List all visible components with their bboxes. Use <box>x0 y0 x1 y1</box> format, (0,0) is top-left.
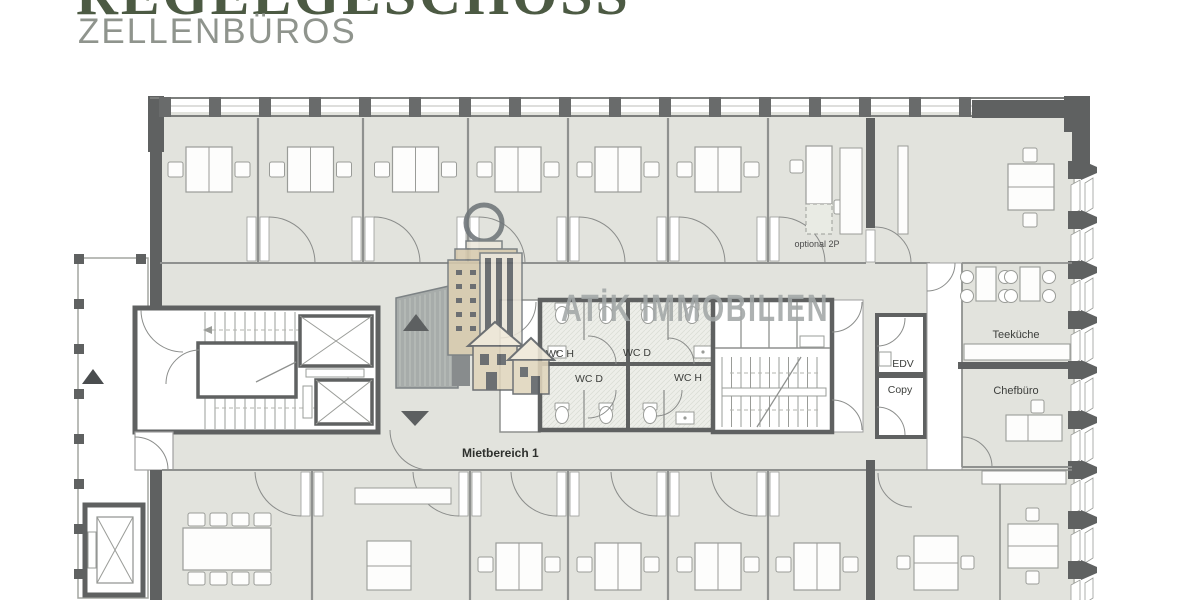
door-leaf <box>670 472 679 516</box>
door-leaf <box>770 217 779 261</box>
chair <box>1031 400 1044 413</box>
balcony-post <box>74 254 84 264</box>
logo-house-window <box>497 354 506 365</box>
logo-window <box>470 298 476 303</box>
door-leaf <box>314 472 323 516</box>
window-mullion <box>609 97 621 117</box>
logo-window <box>470 284 476 289</box>
chair <box>210 572 227 585</box>
sideboard <box>840 148 862 234</box>
chair <box>1026 508 1039 521</box>
window-mullion <box>409 97 421 117</box>
balcony-post <box>74 479 84 489</box>
sideboard <box>898 146 908 234</box>
chair <box>1023 213 1037 227</box>
room-label-wc-d: WC D <box>575 373 603 385</box>
door-leaf <box>459 472 468 516</box>
room-label-chefbuero: Chefbüro <box>993 385 1038 397</box>
facade-anchor <box>1081 460 1097 480</box>
logo-window <box>456 326 462 331</box>
chair <box>1023 148 1037 162</box>
logo-window <box>456 298 462 303</box>
window-pane <box>1071 530 1080 565</box>
chair <box>254 572 271 585</box>
chair <box>544 162 559 177</box>
dividing-wall <box>958 362 1072 369</box>
window-mullion <box>509 97 521 117</box>
counterweight <box>306 369 364 377</box>
round-chair <box>961 271 974 284</box>
shelf <box>879 352 891 366</box>
chair <box>790 160 803 173</box>
round-chair <box>961 290 974 303</box>
chair <box>677 162 692 177</box>
elevator-door <box>88 532 96 568</box>
stair-rail <box>722 388 826 396</box>
window-pane <box>1071 430 1080 465</box>
window-mullion <box>759 97 771 117</box>
logo-window <box>470 326 476 331</box>
desk <box>1006 415 1062 441</box>
chair <box>168 162 183 177</box>
facade-anchor <box>1068 411 1081 429</box>
facade-anchor <box>1081 410 1097 430</box>
chair <box>188 513 205 526</box>
chair <box>577 557 592 572</box>
room-divider <box>875 372 927 378</box>
sideboard <box>982 471 1066 484</box>
window-pane <box>1085 578 1093 600</box>
sink-drain <box>701 350 704 353</box>
chair <box>677 557 692 572</box>
window-mullion <box>709 97 721 117</box>
balcony-post <box>74 299 84 309</box>
chair <box>337 162 352 177</box>
conference-table <box>183 528 271 570</box>
window-pane <box>1085 528 1093 563</box>
logo-house-window <box>520 367 528 377</box>
toilet <box>556 407 569 424</box>
room-label-optional: optional 2P <box>794 239 839 249</box>
door-leaf <box>557 217 566 261</box>
window-mullion <box>459 97 471 117</box>
door-leaf <box>757 217 766 261</box>
window-pane <box>1071 330 1080 365</box>
edv-copy-rooms: EDV Copy <box>875 315 927 437</box>
round-chair <box>1005 290 1018 303</box>
door-leaf <box>472 472 481 516</box>
chair <box>232 513 249 526</box>
window-pane <box>1085 428 1093 463</box>
chair <box>270 162 285 177</box>
table <box>1020 267 1040 301</box>
west-wall <box>150 470 162 600</box>
chair <box>897 556 910 569</box>
chair <box>644 557 659 572</box>
balcony-post <box>74 524 84 534</box>
door-leaf <box>365 217 374 261</box>
room-label-copy: Copy <box>888 384 913 396</box>
west-wall <box>150 140 162 310</box>
chair <box>545 557 560 572</box>
chair <box>478 557 493 572</box>
chair <box>254 513 271 526</box>
door-leaf <box>557 472 566 516</box>
chair <box>1026 571 1039 584</box>
mat <box>800 336 824 347</box>
thick-wall <box>866 118 875 228</box>
door-leaf <box>247 217 256 261</box>
window-mullion <box>859 97 871 117</box>
window-pane <box>1071 280 1080 315</box>
logo-window <box>456 284 462 289</box>
logo-window <box>456 270 462 275</box>
chair <box>644 162 659 177</box>
logo-neck <box>466 241 502 249</box>
round-chair <box>1005 271 1018 284</box>
window-pane <box>1071 380 1080 415</box>
window-pane <box>1071 180 1080 215</box>
facade-anchor <box>1068 561 1081 579</box>
door-leaf <box>670 217 679 261</box>
logo-house-door <box>531 376 540 394</box>
logo-window <box>470 270 476 275</box>
facade-anchor <box>1081 360 1097 380</box>
chair <box>744 162 759 177</box>
balcony-post <box>74 389 84 399</box>
facade-anchor <box>1081 510 1097 530</box>
door-leaf <box>657 472 666 516</box>
logo-house-door <box>486 372 497 390</box>
round-chair <box>1043 271 1056 284</box>
watermark-brand-text: ATİK IMMOBILIEN <box>561 288 829 330</box>
toilet <box>644 407 657 424</box>
door-leaf <box>657 217 666 261</box>
facade-anchor <box>1068 511 1081 529</box>
window-mullion <box>559 97 571 117</box>
balcony-post <box>74 344 84 354</box>
door-leaf <box>260 217 269 261</box>
facade-anchor <box>1081 210 1097 230</box>
door-leaf <box>301 472 310 516</box>
window-mullion <box>959 97 971 117</box>
logo-window <box>456 312 462 317</box>
door-leaf <box>866 230 875 262</box>
room-label-wc-d: WC D <box>623 347 651 359</box>
chair <box>188 572 205 585</box>
window-mullion <box>809 97 821 117</box>
facade-anchor <box>1068 161 1081 179</box>
chair <box>235 162 250 177</box>
facade-anchor <box>1068 311 1081 329</box>
facade-anchor <box>1081 310 1097 330</box>
balcony-post <box>74 569 84 579</box>
logo-house-window <box>480 354 489 365</box>
window-pane <box>1085 328 1093 363</box>
chair <box>442 162 457 177</box>
door-leaf <box>570 217 579 261</box>
table <box>976 267 996 301</box>
sideboard <box>355 488 451 504</box>
window-pane <box>1085 178 1093 213</box>
thick-wall <box>866 460 875 600</box>
round-chair <box>1043 290 1056 303</box>
kitchen-counter <box>964 344 1070 360</box>
room-label-teekueche: Teeküche <box>992 329 1039 341</box>
facade-anchor <box>1068 211 1081 229</box>
window-mullion <box>309 97 321 117</box>
desk <box>806 146 832 204</box>
core-corridor <box>832 300 863 432</box>
room-label-edv: EDV <box>892 358 914 370</box>
window-pane <box>1071 230 1080 265</box>
window-mullion <box>909 97 921 117</box>
window-pane <box>1085 478 1093 513</box>
chair <box>843 557 858 572</box>
door-leaf <box>570 472 579 516</box>
chair <box>375 162 390 177</box>
window-pane <box>1085 278 1093 313</box>
chair <box>577 162 592 177</box>
chair <box>477 162 492 177</box>
window-pane <box>1085 378 1093 413</box>
window-mullion <box>159 97 171 117</box>
chair <box>210 513 227 526</box>
room-label-wc-h: WC H <box>674 372 702 384</box>
window-mullion <box>659 97 671 117</box>
balcony-post <box>136 254 146 264</box>
facade-anchor <box>1081 260 1097 280</box>
logo-window <box>470 312 476 317</box>
chair <box>232 572 249 585</box>
chair <box>776 557 791 572</box>
sink-drain <box>683 416 686 419</box>
area-label-mietbereich: Mietbereich 1 <box>462 446 539 460</box>
window-mullion <box>359 97 371 117</box>
balcony-post <box>74 434 84 444</box>
window-mullion <box>259 97 271 117</box>
door-leaf <box>352 217 361 261</box>
door-leaf <box>770 472 779 516</box>
chair <box>744 557 759 572</box>
corridor-strip <box>927 263 962 470</box>
floor-plan: WC H WC D WC D WC H EDV Copy <box>0 0 1200 600</box>
window-pane <box>1071 480 1080 515</box>
window-pane <box>1085 228 1093 263</box>
chair <box>961 556 974 569</box>
facade-anchor <box>1081 560 1097 580</box>
door-leaf <box>757 472 766 516</box>
window-mullion <box>209 97 221 117</box>
elevator-door <box>303 386 312 418</box>
optional-desk <box>806 204 832 234</box>
